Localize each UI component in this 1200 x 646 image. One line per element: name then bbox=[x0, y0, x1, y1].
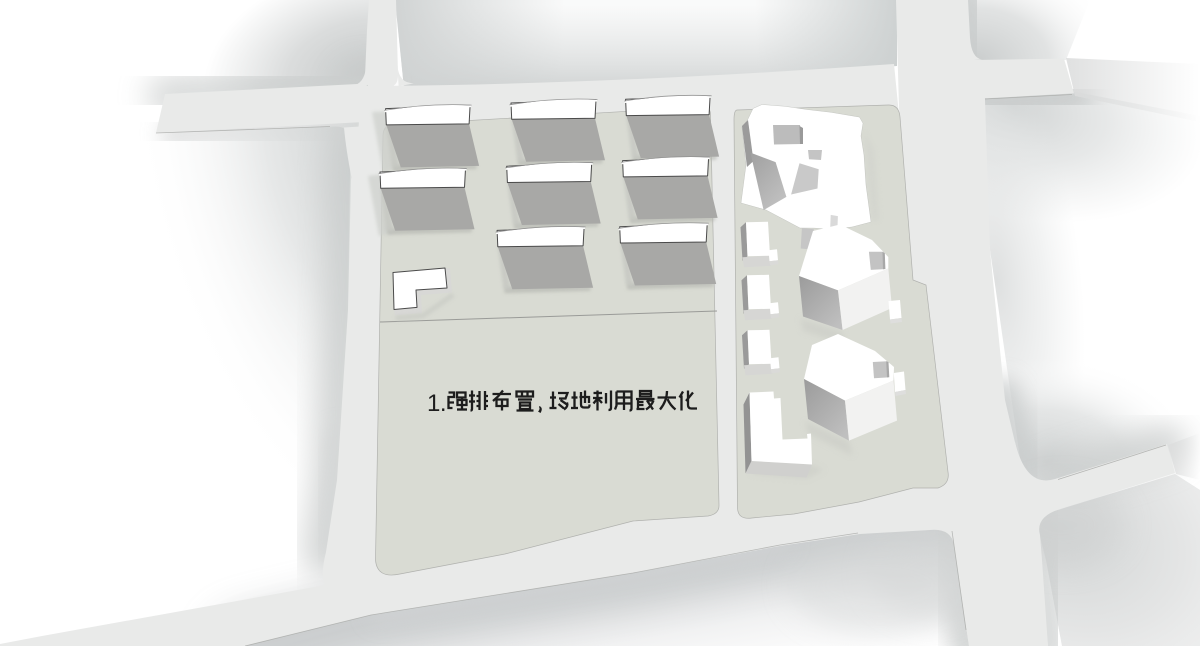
svg-text:1.: 1. bbox=[427, 390, 446, 417]
